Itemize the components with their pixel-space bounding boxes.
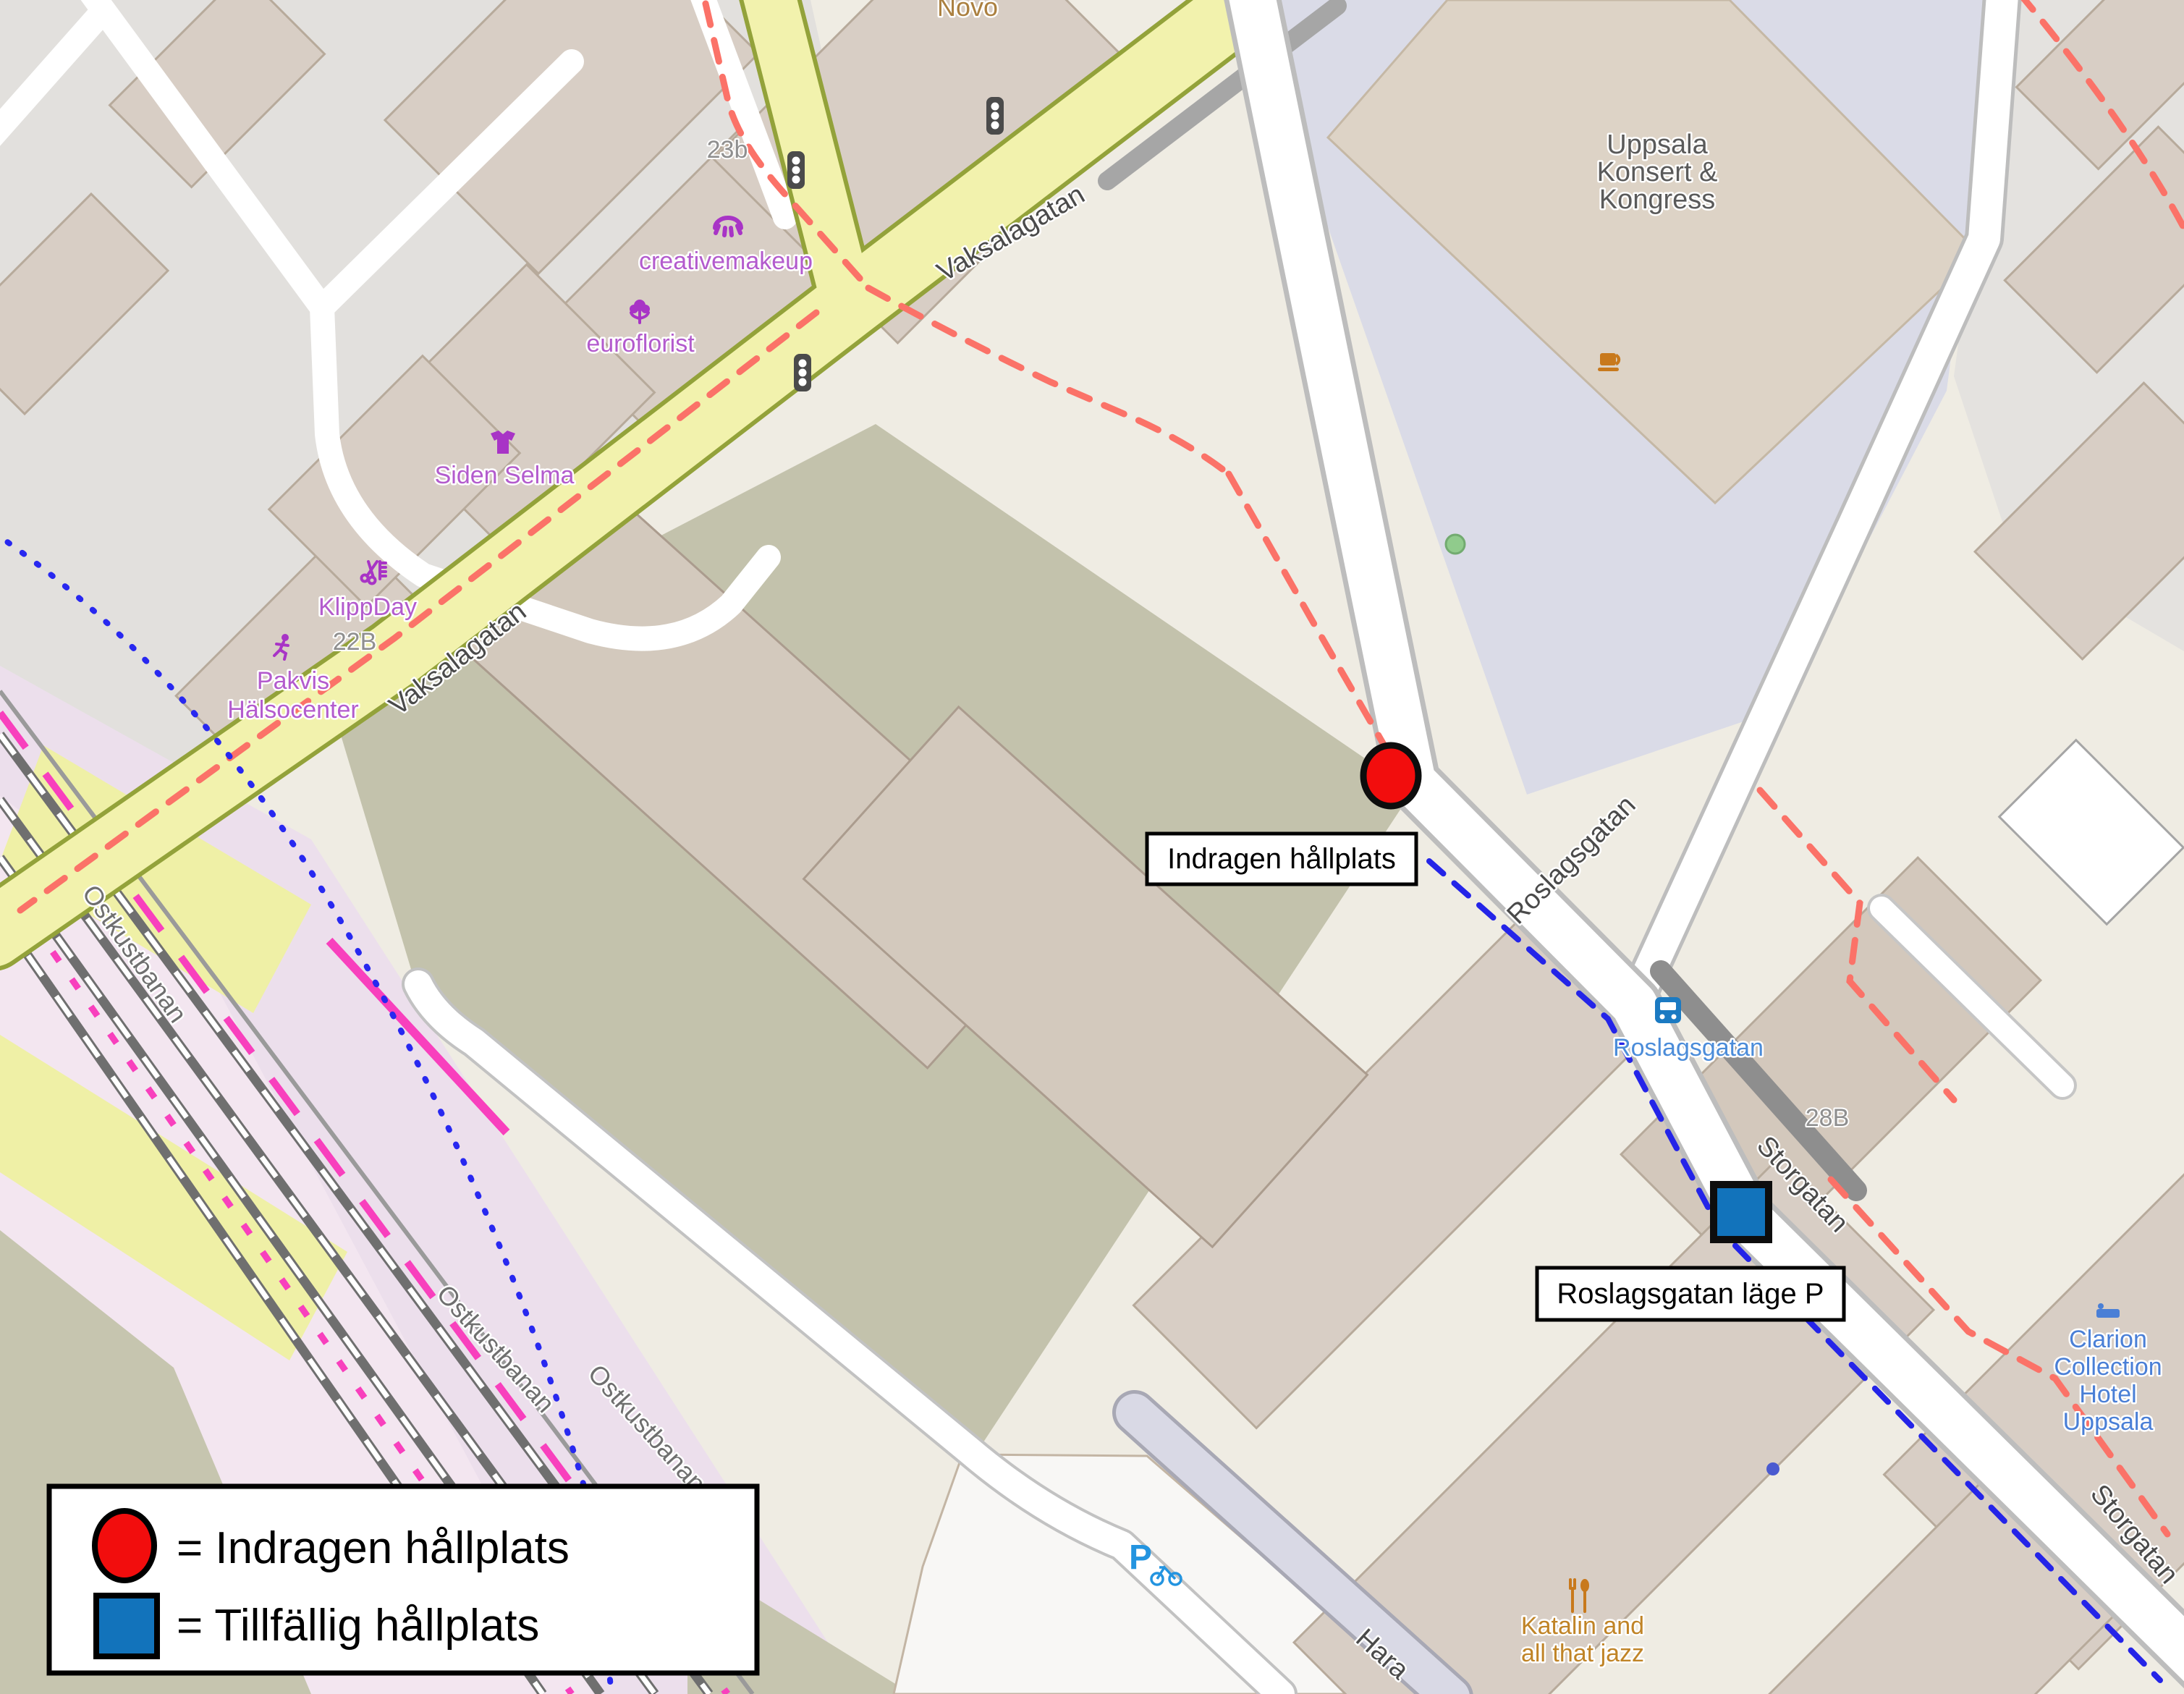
poi-siden-selma: Siden Selma: [435, 462, 575, 489]
address-22b: 22B: [333, 628, 377, 656]
poi-klippday: KlippDay: [318, 593, 417, 621]
map-svg: P Novo 23b creativemakeup euroflorist Si…: [0, 0, 2184, 1694]
temporary-stop-label: Roslagsgatan läge P: [1557, 1278, 1824, 1310]
bus-stop-name: Roslagsgatan: [1613, 1034, 1764, 1062]
poi-clarion-line4: Uppsala: [2063, 1408, 2154, 1436]
poi-konsert-line2: Konsert &: [1597, 157, 1718, 187]
poi-pakvis-line1: Pakvis: [257, 667, 329, 695]
address-28b: 28B: [1806, 1104, 1850, 1132]
poi-euroflorist: euroflorist: [586, 330, 695, 357]
poi-pakvis-line2: Hälsocenter: [227, 696, 358, 724]
poi-clarion-line1: Clarion: [2069, 1326, 2147, 1353]
bus-stop-icon: [1655, 997, 1681, 1023]
poi-clarion-line2: Collection: [2054, 1353, 2162, 1381]
legend-temporary-label: = Tillfällig hållplats: [177, 1601, 539, 1651]
legend-blue-square-icon: [96, 1596, 157, 1656]
withdrawn-stop-marker: [1363, 745, 1418, 806]
poi-clarion-line3: Hotel: [2079, 1381, 2136, 1408]
temporary-stop-marker: [1714, 1185, 1769, 1240]
poi-dot-icon: [1766, 1462, 1779, 1475]
cafe-icon: [1598, 353, 1619, 371]
withdrawn-stop-label: Indragen hållplats: [1167, 843, 1396, 875]
poi-novo: Novo: [937, 0, 998, 22]
address-23b: 23b: [707, 136, 748, 164]
poi-konsert-line3: Kongress: [1599, 185, 1716, 215]
tree-icon: [1446, 535, 1465, 554]
map-canvas: P Novo 23b creativemakeup euroflorist Si…: [0, 0, 2184, 1694]
legend: = Indragen hållplats = Tillfällig hållpl…: [49, 1486, 757, 1673]
parking-p-letter: P: [1129, 1538, 1152, 1577]
legend-red-circle-icon: [95, 1511, 154, 1580]
poi-konsert-line1: Uppsala: [1607, 130, 1708, 160]
legend-withdrawn-label: = Indragen hållplats: [177, 1523, 570, 1573]
poi-creativemakeup: creativemakeup: [639, 247, 813, 275]
poi-katalin-line1: Katalin and: [1521, 1612, 1644, 1640]
poi-katalin-line2: all that jazz: [1521, 1640, 1644, 1667]
